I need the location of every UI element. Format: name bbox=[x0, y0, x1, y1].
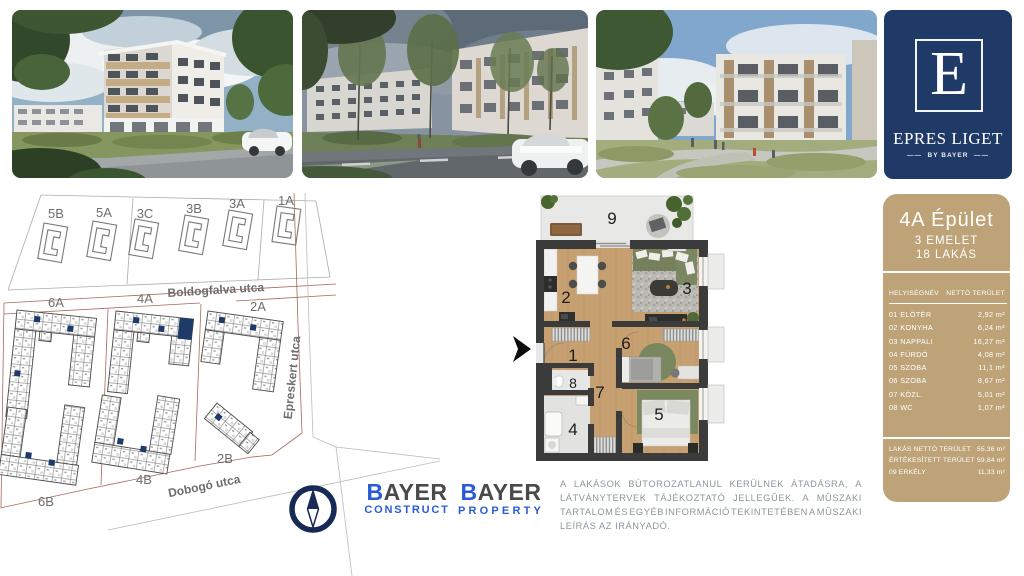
svg-text:3A: 3A bbox=[229, 196, 245, 211]
svg-text:5A: 5A bbox=[96, 205, 112, 220]
svg-text:1: 1 bbox=[568, 346, 577, 365]
svg-text:9: 9 bbox=[607, 209, 616, 228]
svg-text:5: 5 bbox=[654, 405, 663, 424]
svg-text:7: 7 bbox=[595, 383, 604, 402]
svg-text:4B: 4B bbox=[136, 472, 152, 487]
svg-text:5B: 5B bbox=[48, 206, 64, 221]
svg-text:Dobogó utca: Dobogó utca bbox=[167, 472, 242, 500]
svg-text:3C: 3C bbox=[137, 206, 154, 221]
svg-text:3B: 3B bbox=[186, 201, 202, 216]
svg-text:3: 3 bbox=[682, 279, 691, 298]
svg-text:2B: 2B bbox=[217, 451, 233, 466]
svg-text:6B: 6B bbox=[38, 494, 54, 509]
svg-text:2A: 2A bbox=[250, 299, 266, 314]
svg-text:6: 6 bbox=[621, 334, 630, 353]
svg-text:2: 2 bbox=[561, 288, 570, 307]
svg-text:8: 8 bbox=[569, 375, 577, 391]
svg-text:4: 4 bbox=[568, 420, 577, 439]
svg-text:4A: 4A bbox=[137, 291, 153, 306]
svg-text:6A: 6A bbox=[48, 295, 64, 310]
svg-text:1A: 1A bbox=[278, 193, 294, 208]
